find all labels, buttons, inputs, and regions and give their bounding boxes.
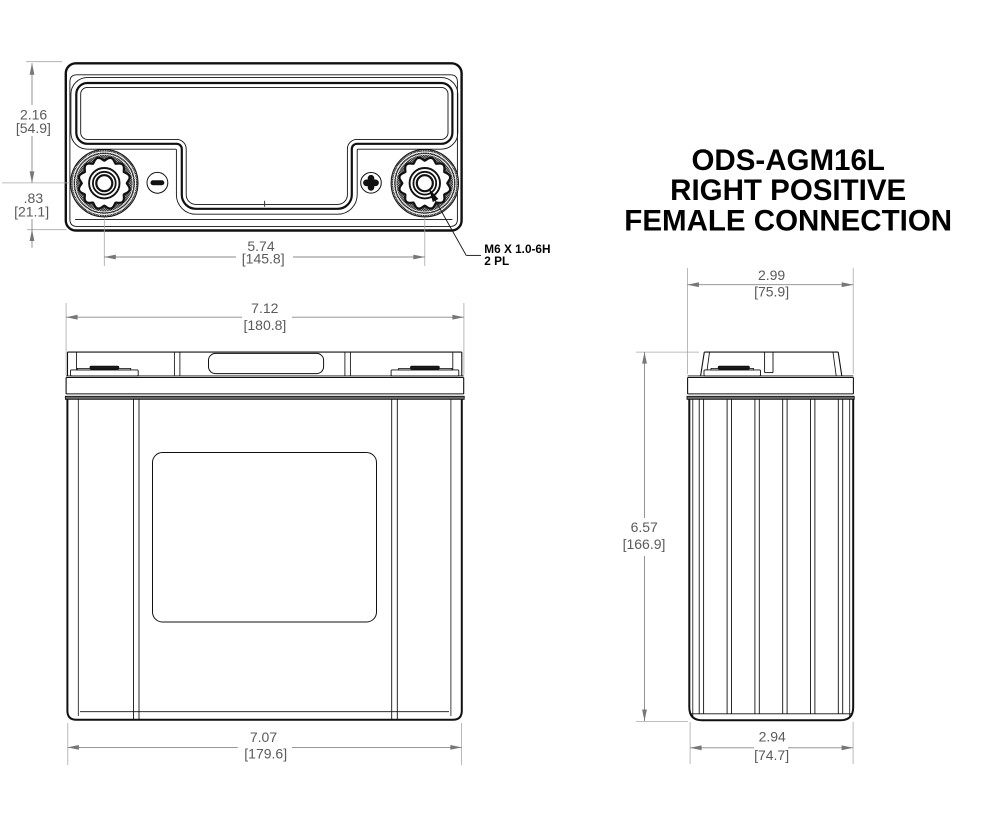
svg-text:[21.1]: [21.1]: [14, 203, 49, 219]
svg-text:ODS-AGM16L: ODS-AGM16L: [691, 144, 884, 177]
svg-text:[179.6]: [179.6]: [244, 745, 287, 761]
svg-text:RIGHT POSITIVE: RIGHT POSITIVE: [670, 174, 906, 207]
svg-text:2.99: 2.99: [758, 267, 785, 283]
svg-text:[75.9]: [75.9]: [754, 284, 789, 300]
svg-text:2 PL: 2 PL: [484, 254, 509, 268]
svg-text:6.57: 6.57: [631, 519, 658, 535]
svg-text:7.12: 7.12: [251, 300, 278, 316]
svg-text:[54.9]: [54.9]: [16, 120, 51, 136]
svg-text:[180.8]: [180.8]: [243, 317, 286, 333]
svg-text:[166.9]: [166.9]: [623, 536, 666, 552]
svg-text:2.94: 2.94: [759, 728, 786, 744]
svg-text:FEMALE CONNECTION: FEMALE CONNECTION: [624, 205, 952, 238]
svg-text:[145.8]: [145.8]: [242, 251, 285, 267]
svg-text:[74.7]: [74.7]: [754, 747, 789, 763]
svg-text:7.07: 7.07: [250, 729, 277, 745]
